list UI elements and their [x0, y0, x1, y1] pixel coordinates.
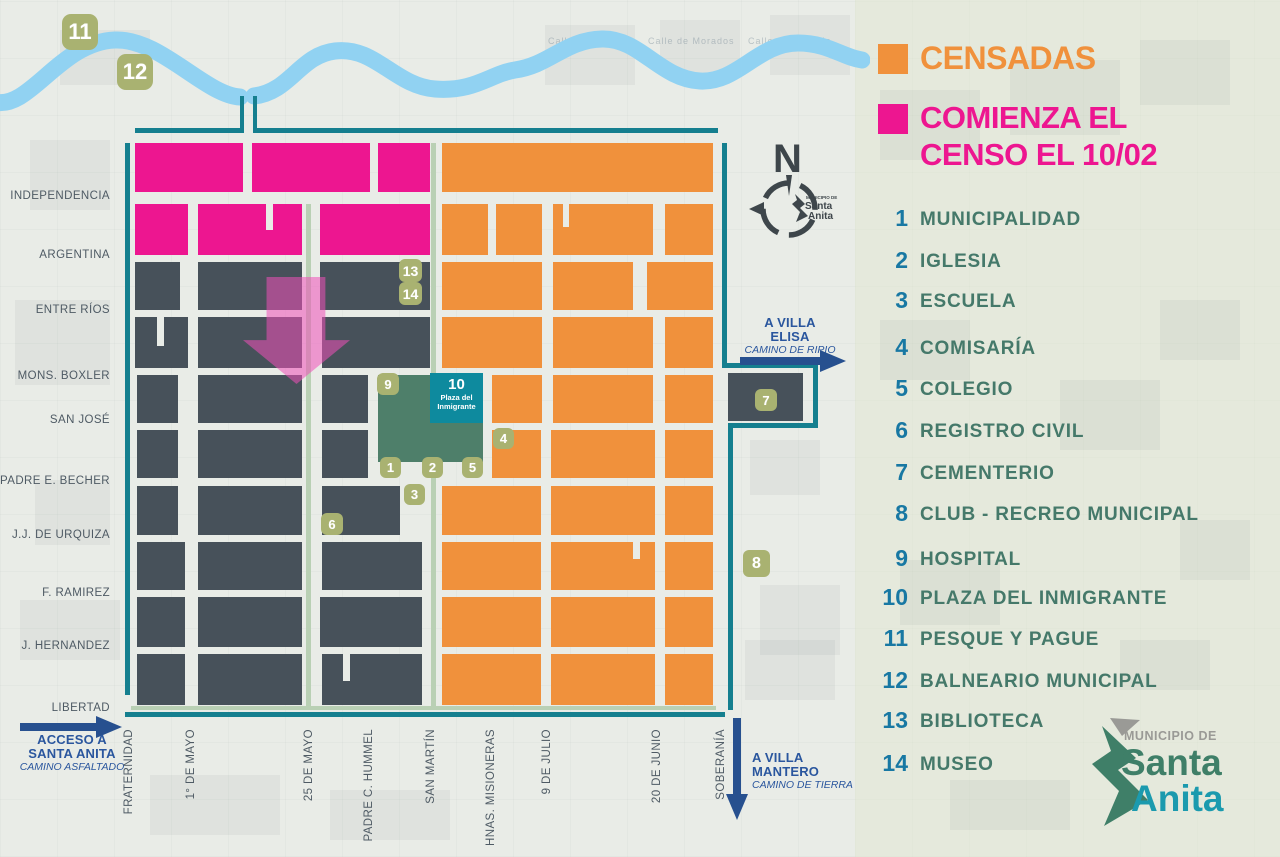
- compass-rose: N MUNICIPIO DE Santa Anita: [742, 130, 842, 245]
- legend-item-label: PLAZA DEL INMIGRANTE: [920, 588, 1167, 610]
- legend-item-number: 3: [868, 287, 908, 314]
- map-block: [137, 597, 185, 647]
- villa-elisa-line1: A VILLA: [740, 316, 840, 330]
- map-badge-5: 5: [462, 457, 483, 478]
- map-block: [137, 375, 178, 423]
- map-block: [442, 317, 542, 368]
- map-block: [665, 486, 713, 535]
- map-block: [322, 430, 368, 478]
- background-texture-block: [750, 440, 820, 495]
- map-block: [266, 204, 273, 230]
- legend-item-label: MUSEO: [920, 754, 994, 776]
- map-badge-7: 7: [755, 389, 777, 411]
- map-block: [137, 486, 178, 535]
- legend-item-12: 12BALNEARIO MUNICIPAL: [868, 667, 1268, 694]
- legend-item-number: 7: [868, 459, 908, 486]
- legend-item-number: 8: [868, 500, 908, 527]
- map-block: [137, 654, 185, 705]
- legend-item-number: 2: [868, 247, 908, 274]
- street-label-san-mart-n: SAN MARTÍN: [425, 729, 437, 804]
- street-label-j-j-de-urquiza: J.J. DE URQUIZA: [0, 529, 110, 541]
- map-badge-3: 3: [404, 484, 425, 505]
- map-block: [665, 430, 713, 478]
- acceso-santa-anita-label: ACCESO A SANTA ANITA CAMINO ASFALTADO: [14, 733, 130, 774]
- legend-item-number: 6: [868, 417, 908, 444]
- street-label-1-de-mayo: 1° DE MAYO: [185, 729, 197, 799]
- compass-north-letter: N: [773, 137, 802, 181]
- legend-item-11: 11PESQUE Y PAGUE: [868, 625, 1268, 652]
- street-label-padre-c-hummel: PADRE C. HUMMEL: [363, 729, 375, 842]
- map-block: [198, 375, 302, 423]
- map-line-sage: [131, 706, 716, 710]
- legend-item-number: 11: [868, 625, 908, 652]
- legend-item-10: 10PLAZA DEL INMIGRANTE: [868, 584, 1268, 611]
- map-line-teal: [253, 96, 257, 133]
- legend-item-9: 9HOSPITAL: [868, 545, 1268, 572]
- legend-item-label: BALNEARIO MUNICIPAL: [920, 671, 1158, 693]
- map-line-sage: [431, 462, 436, 706]
- legend-item-number: 4: [868, 334, 908, 361]
- legend-item-label: CLUB - RECREO MUNICIPAL: [920, 504, 1199, 526]
- legend-item-number: 14: [868, 750, 908, 777]
- map-block: [378, 143, 430, 192]
- map-badge-11: 11: [62, 14, 98, 50]
- map-block: [665, 375, 713, 423]
- map-block: [343, 654, 350, 681]
- street-label-san-jos-: SAN JOSÉ: [0, 414, 110, 426]
- villa-mantero-line3: CAMINO DE TIERRA: [752, 779, 882, 792]
- legend-item-6: 6REGISTRO CIVIL: [868, 417, 1268, 444]
- street-label-entre-r-os: ENTRE RÍOS: [0, 304, 110, 316]
- map-block: [442, 486, 541, 535]
- map-block: [442, 597, 541, 647]
- acceso-line1: ACCESO A: [14, 733, 130, 747]
- background-texture-block: [950, 780, 1070, 830]
- map-badge-12: 12: [117, 54, 153, 90]
- map-block: [442, 542, 541, 590]
- legend-item-label: IGLESIA: [920, 251, 1002, 273]
- map-line-sage: [431, 143, 436, 375]
- map-block: [551, 597, 655, 647]
- map-block: [135, 262, 180, 310]
- map-block: [198, 597, 302, 647]
- map-block: [135, 204, 188, 255]
- street-label-mons-boxler: MONS. BOXLER: [0, 370, 110, 382]
- legend-item-number: 5: [868, 375, 908, 402]
- street-label-fraternidad: FRATERNIDAD: [123, 729, 135, 814]
- map-block: [492, 375, 542, 423]
- map-block: [320, 204, 430, 255]
- map-block: [553, 262, 633, 310]
- map-block: [665, 317, 713, 368]
- map-block: [198, 430, 302, 478]
- map-line-teal: [240, 96, 244, 133]
- map-block: [198, 204, 302, 255]
- map-line-teal: [125, 143, 130, 695]
- background-texture-block: [150, 775, 280, 835]
- acceso-line2: SANTA ANITA: [14, 747, 130, 761]
- legend-item-1: 1MUNICIPALIDAD: [868, 205, 1268, 232]
- map-line-teal: [728, 423, 733, 710]
- plaza-del-inmigrante-box: 10 Plaza del Inmigrante: [430, 373, 483, 423]
- legend-item-5: 5COLEGIO: [868, 375, 1268, 402]
- plaza-number: 10: [430, 376, 483, 393]
- villa-mantero-line1: A VILLA: [752, 751, 882, 765]
- villa-elisa-arrow-icon: [738, 348, 850, 374]
- map-block: [322, 375, 368, 423]
- map-block: [137, 430, 178, 478]
- map-badge-4: 4: [493, 428, 514, 449]
- comienza-color-swatch: [878, 104, 908, 134]
- map-badge-2: 2: [422, 457, 443, 478]
- legend-item-number: 13: [868, 707, 908, 734]
- map-block: [496, 204, 542, 255]
- legend-item-label: PESQUE Y PAGUE: [920, 629, 1099, 651]
- legend-item-number: 9: [868, 545, 908, 572]
- street-label-f-ramirez: F. RAMIREZ: [0, 587, 110, 599]
- legend-item-label: ESCUELA: [920, 291, 1016, 313]
- map-block: [442, 262, 542, 310]
- map-block: [320, 597, 422, 647]
- logo-anita-text: Anita: [1131, 778, 1224, 820]
- logo-municipio-de-text: MUNICIPIO DE: [1124, 729, 1217, 743]
- map-block: [135, 143, 243, 192]
- map-block: [665, 542, 713, 590]
- background-texture-block: [1140, 40, 1230, 105]
- legend-item-label: MUNICIPALIDAD: [920, 209, 1081, 231]
- legend-item-2: 2IGLESIA: [868, 247, 1268, 274]
- map-badge-14: 14: [399, 282, 422, 305]
- street-label-argentina: ARGENTINA: [0, 249, 110, 261]
- map-badge-1: 1: [380, 457, 401, 478]
- compass-west-pointer: [749, 202, 764, 216]
- map-line-teal: [135, 128, 243, 133]
- censadas-legend-label: CENSADAS: [920, 40, 1096, 77]
- street-label-independencia: INDEPENDENCIA: [0, 190, 110, 202]
- census-map-infographic: Calle de HidalgoCalle de MoradosCalle de…: [0, 0, 1280, 857]
- map-block: [322, 542, 422, 590]
- map-block: [442, 204, 488, 255]
- map-block: [551, 430, 655, 478]
- map-block: [647, 262, 713, 310]
- street-label-9-de-julio: 9 DE JULIO: [541, 729, 553, 794]
- legend-item-number: 10: [868, 584, 908, 611]
- legend-item-label: COLEGIO: [920, 379, 1013, 401]
- legend-item-number: 1: [868, 205, 908, 232]
- villa-mantero-arrow-icon: [724, 716, 750, 824]
- background-texture-block: [745, 640, 835, 700]
- street-label-25-de-mayo: 25 DE MAYO: [303, 729, 315, 801]
- map-block: [665, 597, 713, 647]
- legend-item-label: REGISTRO CIVIL: [920, 421, 1084, 443]
- compass-mini-logo-line1: MUNICIPIO DE: [806, 195, 837, 200]
- legend-item-4: 4COMISARÍA: [868, 334, 1268, 361]
- map-badge-13: 13: [399, 259, 422, 282]
- legend-item-label: CEMENTERIO: [920, 463, 1055, 485]
- map-block: [157, 317, 164, 346]
- comienza-line1: COMIENZA EL: [920, 99, 1157, 136]
- street-label-j-hernandez: J. HERNANDEZ: [0, 640, 110, 652]
- comienza-legend-label: COMIENZA EL CENSO EL 10/02: [920, 99, 1157, 173]
- map-block: [551, 654, 655, 705]
- plaza-label-line1: Plaza del: [430, 393, 483, 402]
- legend-item-label: COMISARÍA: [920, 338, 1036, 360]
- censadas-color-swatch: [878, 44, 908, 74]
- map-block: [442, 143, 713, 192]
- legend-item-number: 12: [868, 667, 908, 694]
- map-line-teal: [125, 712, 725, 717]
- map-block: [563, 204, 569, 227]
- map-block: [137, 542, 185, 590]
- street-label-libertad: LIBERTAD: [0, 702, 110, 714]
- legend-item-label: HOSPITAL: [920, 549, 1021, 571]
- map-block: [198, 486, 302, 535]
- map-line-teal: [253, 128, 718, 133]
- map-block: [198, 542, 302, 590]
- map-line-teal: [722, 143, 727, 365]
- street-label-20-de-junio: 20 DE JUNIO: [651, 729, 663, 803]
- legend-item-8: 8CLUB - RECREO MUNICIPAL: [868, 500, 1268, 527]
- map-block: [442, 654, 541, 705]
- map-block: [551, 486, 655, 535]
- compass-mini-logo-line3: Anita: [808, 211, 833, 222]
- street-label-hnas-misioneras: HNAS. MISIONERAS: [485, 729, 497, 846]
- map-block: [198, 654, 302, 705]
- villa-elisa-line2: ELISA: [740, 330, 840, 344]
- plaza-label-line2: Inmigrante: [430, 402, 483, 411]
- map-block: [633, 542, 640, 559]
- legend-item-3: 3ESCUELA: [868, 287, 1268, 314]
- map-block: [553, 317, 653, 368]
- map-block: [252, 143, 370, 192]
- map-badge-6: 6: [321, 513, 343, 535]
- legend-item-7: 7CEMENTERIO: [868, 459, 1268, 486]
- villa-mantero-label: A VILLA MANTERO CAMINO DE TIERRA: [752, 751, 882, 792]
- map-badge-9: 9: [377, 373, 399, 395]
- street-label-padre-e-becher: PADRE E. BECHER: [0, 475, 110, 487]
- map-badge-8: 8: [743, 550, 770, 577]
- map-block: [553, 375, 653, 423]
- street-label-soberan-a: SOBERANÍA: [715, 729, 727, 800]
- legend-item-label: BIBLIOTECA: [920, 711, 1044, 733]
- villa-mantero-line2: MANTERO: [752, 765, 882, 779]
- comienza-line2: CENSO EL 10/02: [920, 136, 1157, 173]
- map-block: [322, 654, 422, 705]
- map-line-teal: [728, 423, 818, 428]
- map-block: [665, 204, 713, 255]
- map-block: [665, 654, 713, 705]
- acceso-line3: CAMINO ASFALTADO: [14, 761, 130, 774]
